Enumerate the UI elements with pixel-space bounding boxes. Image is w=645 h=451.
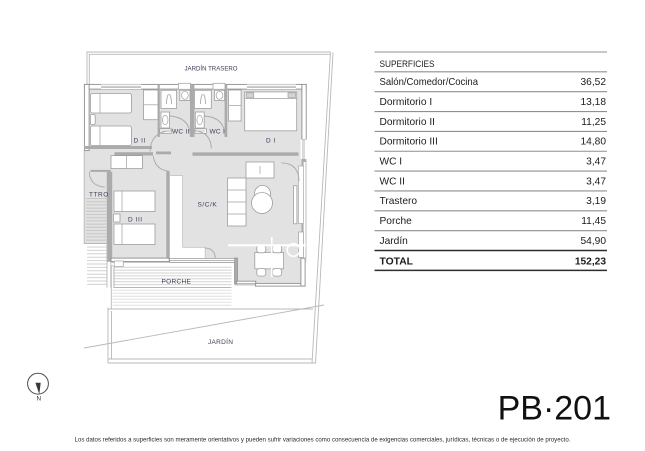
svg-text:D III: D III [128, 217, 143, 224]
svg-text:WC II: WC II [172, 129, 190, 136]
svg-text:Dormitorio I: Dormitorio I [380, 97, 433, 108]
svg-text:N: N [37, 395, 42, 402]
svg-text:13,18: 13,18 [581, 97, 607, 108]
svg-text:WC I: WC I [380, 156, 403, 167]
svg-text:JARDÍN: JARDÍN [208, 337, 233, 346]
svg-text:3,47: 3,47 [586, 156, 606, 167]
svg-text:36,52: 36,52 [581, 77, 607, 88]
svg-text:54,90: 54,90 [581, 236, 607, 247]
svg-text:PORCHE: PORCHE [162, 279, 192, 286]
svg-text:PB·201: PB·201 [498, 390, 611, 428]
svg-text:JARDÍN TRASERO: JARDÍN TRASERO [185, 66, 238, 73]
svg-text:Jardín: Jardín [380, 236, 408, 247]
svg-text:TOTAL: TOTAL [380, 257, 414, 268]
svg-text:152,23: 152,23 [575, 257, 606, 268]
svg-text:Dormitorio II: Dormitorio II [380, 117, 435, 128]
svg-text:Salón/Comedor/Cocina: Salón/Comedor/Cocina [380, 77, 479, 88]
svg-text:SUPERFICIES: SUPERFICIES [380, 58, 435, 69]
svg-text:11,45: 11,45 [581, 216, 606, 227]
svg-text:TTRO: TTRO [89, 192, 109, 199]
svg-text:WC II: WC II [380, 176, 405, 187]
svg-text:3,47: 3,47 [586, 176, 606, 187]
svg-text:Dormitorio III: Dormitorio III [380, 137, 438, 148]
svg-text:D I: D I [266, 138, 276, 145]
svg-text:Porche: Porche [380, 216, 413, 227]
svg-text:14,80: 14,80 [581, 137, 607, 148]
svg-text:WC I: WC I [210, 129, 226, 136]
svg-text:D II: D II [134, 138, 146, 145]
svg-text:S/C/K: S/C/K [198, 202, 218, 209]
svg-text:Trastero: Trastero [380, 196, 418, 207]
svg-text:11,25: 11,25 [581, 117, 606, 128]
svg-text:3,19: 3,19 [586, 196, 606, 207]
svg-text:Los datos referidos a superfic: Los datos referidos a superficies son me… [75, 437, 571, 444]
